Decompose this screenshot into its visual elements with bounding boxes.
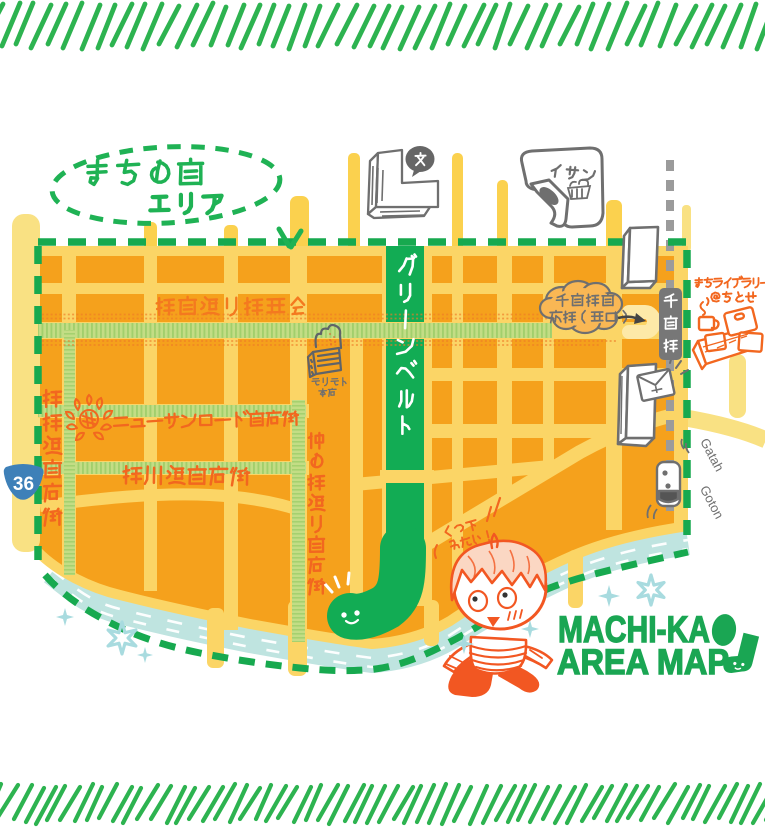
svg-text:Goton: Goton <box>697 483 727 521</box>
svg-text:36: 36 <box>13 474 34 495</box>
svg-text:Gatah: Gatah <box>697 436 727 474</box>
svg-text:AREA MAP: AREA MAP <box>557 643 729 682</box>
